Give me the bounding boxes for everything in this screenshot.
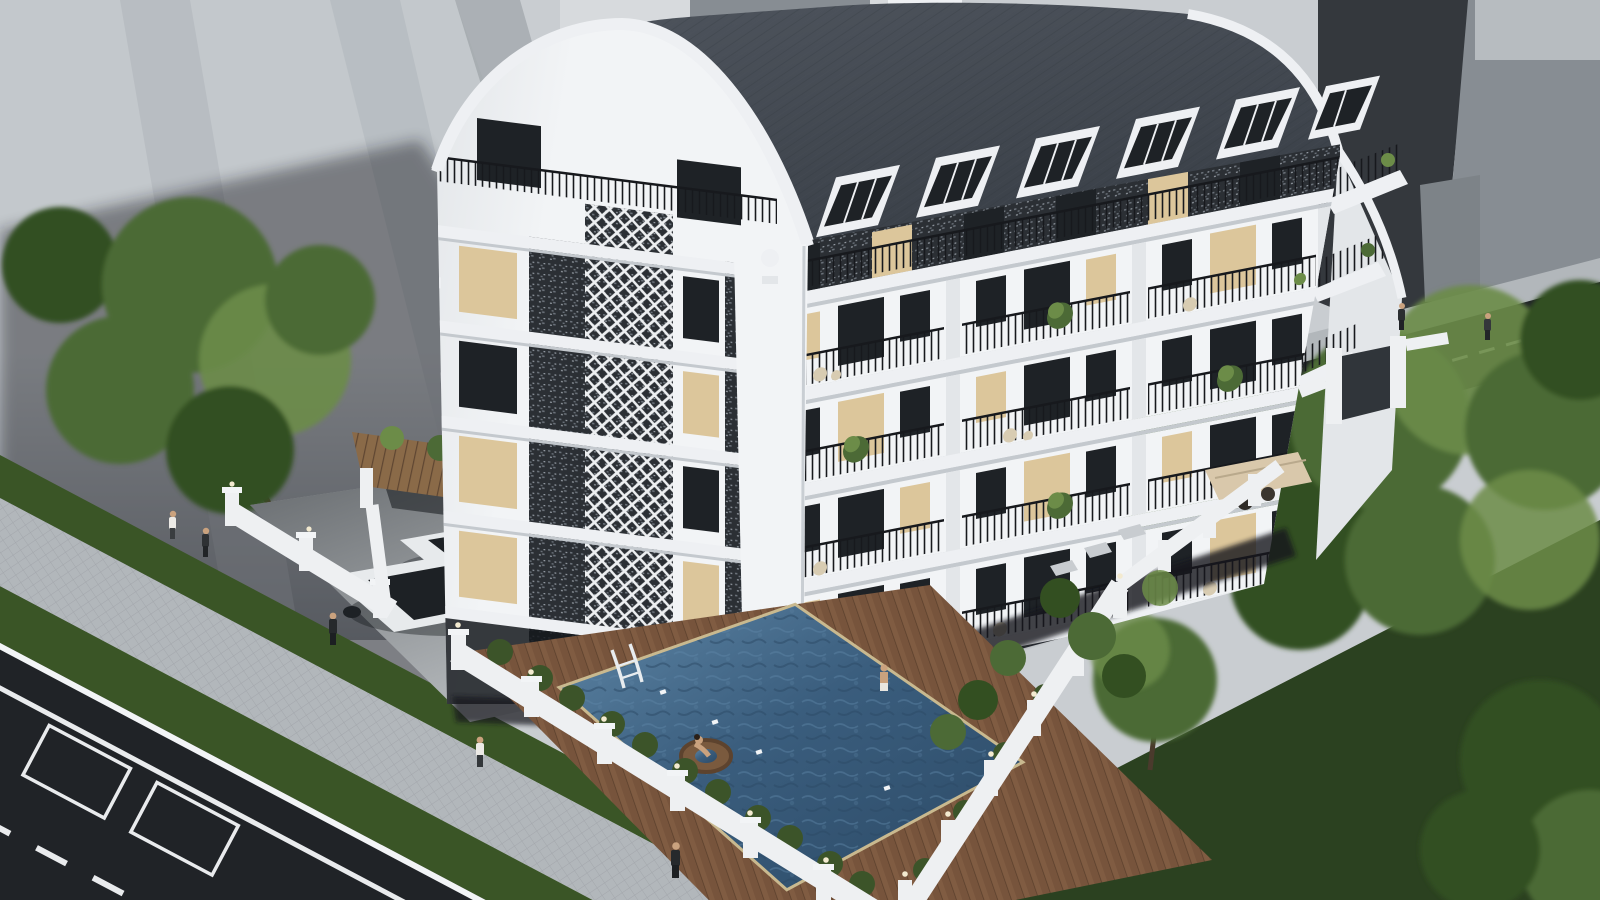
pedestrian <box>329 613 337 645</box>
scene <box>0 0 1600 900</box>
gate-pillar <box>1390 336 1406 408</box>
gate-pillar <box>1326 348 1342 424</box>
background-wall <box>1420 175 1480 302</box>
pedestrian <box>476 737 484 767</box>
gate-pillar <box>360 468 373 508</box>
person-on-deck <box>880 664 888 691</box>
gate-door <box>1342 346 1390 420</box>
render-canvas <box>0 0 1600 900</box>
